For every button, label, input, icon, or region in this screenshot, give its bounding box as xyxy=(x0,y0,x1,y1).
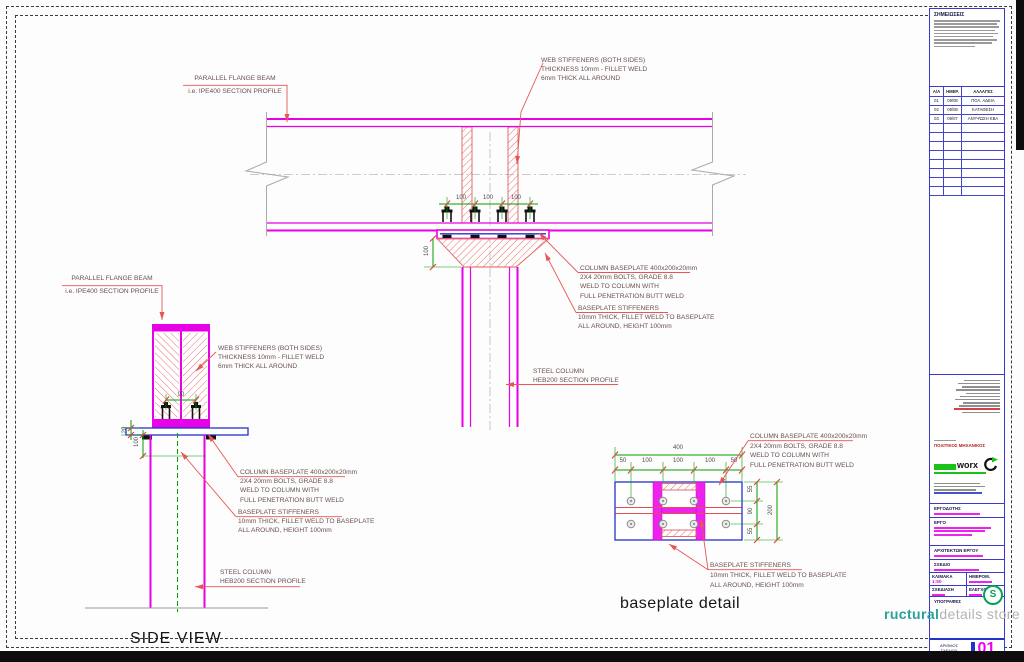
company-text-line xyxy=(964,380,1000,381)
revision-table: Α/Α ΗΜΕΡ. ΑΛΛΑΓΕΣ 01 09/08 ΠΟΛ. ΑΔΕΙΑ 02… xyxy=(930,87,1004,196)
field-client-value xyxy=(934,513,980,515)
notes-text-line xyxy=(934,39,997,41)
front-web-stiffeners-label: WEB STIFFENERS (BOTH SIDES) THICKNESS 10… xyxy=(541,56,647,84)
logo-tagline-bar xyxy=(934,472,986,474)
plan-column-web xyxy=(662,508,696,514)
drawing-linework xyxy=(0,0,1024,662)
store-brand: ructuraldetails store xyxy=(884,606,1020,622)
dim-plan-seg-3: 100 xyxy=(668,458,688,464)
side-beam-label-1: PARALLEL FLANGE BEAM xyxy=(62,274,162,283)
company-text-line xyxy=(956,389,1000,390)
revision-row-empty xyxy=(930,124,1004,133)
worx-swoosh-icon xyxy=(981,457,999,473)
field-drafted: ΣΧΕΔΙΑΣΗ xyxy=(930,586,967,596)
revision-row-empty xyxy=(930,169,1004,178)
revision-header-row: Α/Α ΗΜΕΡ. ΑΛΛΑΓΕΣ xyxy=(930,87,1004,97)
notes-text-line xyxy=(934,23,997,25)
side-column-baseplate-label: COLUMN BASEPLATE 400x200x20mm 2X4 20mm B… xyxy=(240,468,357,505)
plan-column-baseplate-label: COLUMN BASEPLATE 400x200x20mm 2X4 20mm B… xyxy=(750,432,867,470)
field-project-value xyxy=(934,534,972,536)
front-web-stiffener-right xyxy=(508,127,518,223)
date-value xyxy=(969,581,992,583)
company-email-line xyxy=(954,408,1000,409)
address-text-line xyxy=(934,486,985,487)
front-beam-label-2: i.e. IPE400 SECTION PROFILE xyxy=(183,87,287,96)
logo-prefix-bar xyxy=(934,464,956,470)
company-text-line xyxy=(958,383,1000,384)
revision-row-empty xyxy=(930,133,1004,142)
front-beam-label-1: PARALLEL FLANGE BEAM xyxy=(183,74,287,83)
plan-baseplate-stiffeners-label: BASEPLATE STIFFENERS 10mm THICK, FILLET … xyxy=(710,561,846,590)
titleblock: ΣΗΜΕΙΩΣΕΙΣ Α/Α ΗΜΕΡ. ΑΛΛΑΓΕΣ 01 09/08 ΠΟ… xyxy=(929,8,1005,652)
scale-value: 1:50 xyxy=(932,580,964,585)
company-info xyxy=(930,374,1004,436)
company-text-line xyxy=(959,405,1000,406)
company-text-line xyxy=(955,399,1000,400)
side-web-stiffeners-label: WEB STIFFENERS (BOTH SIDES) THICKNESS 10… xyxy=(218,344,324,372)
revision-row: 01 09/08 ΠΟΛ. ΑΔΕΙΑ xyxy=(930,97,1004,106)
notes-text-line xyxy=(934,26,999,28)
dim-side-height: 100 xyxy=(134,431,140,453)
front-web-stiffener-left xyxy=(462,127,472,223)
field-drawing-value xyxy=(934,569,979,571)
dim-plan-overall-height: 200 xyxy=(768,499,774,521)
dim-plan-seg-1: 50 xyxy=(613,458,633,464)
titleblock-spacer xyxy=(930,196,1004,374)
drafted-value xyxy=(932,594,945,596)
page-edge-right xyxy=(1016,0,1024,150)
address-text-line xyxy=(934,489,976,490)
dim-plan-seg-5: 50 xyxy=(724,458,744,464)
address-web-line xyxy=(934,492,982,493)
side-steel-column xyxy=(151,433,205,612)
field-architect-value xyxy=(934,555,983,557)
plan-column-flange-right xyxy=(696,482,705,540)
side-view-title: SIDE VIEW xyxy=(130,630,222,648)
office-address xyxy=(930,479,1004,503)
address-text-line xyxy=(934,483,980,484)
engineer-text-line xyxy=(934,440,956,442)
revision-row: 03 09/07 ΑΝΥΨΩΣΗ ΚΒΑ xyxy=(930,115,1004,124)
page-edge-bottom xyxy=(0,651,1024,662)
brand-name-bold: ructural xyxy=(884,606,939,622)
notes-text-line xyxy=(934,30,995,32)
field-architect: ΑΡΧΙΤΕΚΤΩΝ ΕΡΓΟΥ xyxy=(930,545,1004,559)
company-text-line xyxy=(962,386,1000,387)
side-steel-column-label: STEEL COLUMN HEB200 SECTION PROFILE xyxy=(220,568,306,586)
break-symbol-right xyxy=(692,112,734,236)
field-project: ΕΡΓΟ xyxy=(930,517,1004,545)
dim-plan-seg-2: 100 xyxy=(637,458,657,464)
notes-panel: ΣΗΜΕΙΩΣΕΙΣ xyxy=(930,9,1004,87)
plan-stiffener-top xyxy=(662,484,696,491)
front-baseplate-stiffeners xyxy=(437,239,549,268)
worx-logo: worx xyxy=(930,457,1004,479)
field-scale: ΚΛΙΜΑΚΑ 1:50 xyxy=(930,573,967,585)
notes-text-line xyxy=(934,33,998,35)
brand-name-light: details store xyxy=(939,606,1020,622)
dim-front-spacing-2: 100 xyxy=(475,195,501,201)
field-date: ΗΜΕΡΟΜ. xyxy=(967,573,1004,585)
revision-row: 02 09/08 ΚΑΤΑΘΕΣΗ xyxy=(930,106,1004,115)
plan-column-flange-left xyxy=(653,482,662,540)
company-text-line xyxy=(962,412,1000,413)
notes-text-line xyxy=(934,46,975,48)
engineer-role: ΠΟΛΙΤΙΚΟΣ ΜΗΧΑΝΙΚΟΣ xyxy=(934,443,1000,448)
notes-text-line xyxy=(934,36,993,38)
front-anchor-bolts xyxy=(442,207,536,223)
revision-row-empty xyxy=(930,160,1004,169)
dim-front-spacing-3: 100 xyxy=(503,195,529,201)
front-column-baseplate-label: COLUMN BASEPLATE 400x200x20mm 2X4 20mm B… xyxy=(580,264,697,301)
dim-front-spacing-1: 100 xyxy=(448,195,474,201)
engineer-block: ΠΟΛΙΤΙΚΟΣ ΜΗΧΑΝΙΚΟΣ xyxy=(930,436,1004,457)
notes-text-line xyxy=(934,42,992,44)
dim-plan-hseg-1: 55 xyxy=(748,478,754,500)
dim-side-bolt-gauge: 90 xyxy=(173,392,189,398)
notes-title: ΣΗΜΕΙΩΣΕΙΣ xyxy=(934,12,1000,18)
front-baseplate-stiffeners-label: BASEPLATE STIFFENERS 10mm THICK, FILLET … xyxy=(578,304,714,332)
field-client: ΕΡΓΟΔΟΤΗΣ xyxy=(930,503,1004,517)
revision-row-empty xyxy=(930,151,1004,160)
company-text-line xyxy=(960,396,1000,397)
dim-plan-overall-width: 400 xyxy=(663,445,693,451)
logo-text: worx xyxy=(957,460,978,470)
revision-row-empty xyxy=(930,187,1004,196)
field-drawing: ΣΧΕΔΙΟ xyxy=(930,559,1004,572)
side-beam-label-2: i.e. IPE400 SECTION PROFILE xyxy=(62,287,162,296)
dim-side-plate-thickness: 20 xyxy=(122,419,128,441)
company-text-line xyxy=(963,402,1000,403)
plan-stiffener-bottom xyxy=(662,530,696,537)
dim-plan-seg-4: 100 xyxy=(700,458,720,464)
dim-front-stiffener-height: 100 xyxy=(424,240,430,262)
revision-row-empty xyxy=(930,178,1004,187)
front-steel-column-label: STEEL COLUMN HEB200 SECTION PROFILE xyxy=(533,367,619,385)
side-baseplate-stiffeners-label: BASEPLATE STIFFENERS 10mm THICK, FILLET … xyxy=(238,508,374,536)
dim-plan-hseg-3: 55 xyxy=(748,520,754,542)
baseplate-detail-title: baseplate detail xyxy=(620,595,740,613)
company-text-line xyxy=(966,393,1000,394)
drawing-sheet: PARALLEL FLANGE BEAM i.e. IPE400 SECTION… xyxy=(0,0,1024,662)
field-project-value xyxy=(934,530,985,532)
checked-value xyxy=(969,594,982,596)
revision-row-empty xyxy=(930,142,1004,151)
break-symbol-left xyxy=(246,112,288,236)
dim-plan-hseg-2: 90 xyxy=(748,500,754,522)
notes-text-line xyxy=(934,20,1000,22)
field-project-value xyxy=(934,527,991,529)
store-s-icon: S xyxy=(983,585,1003,605)
